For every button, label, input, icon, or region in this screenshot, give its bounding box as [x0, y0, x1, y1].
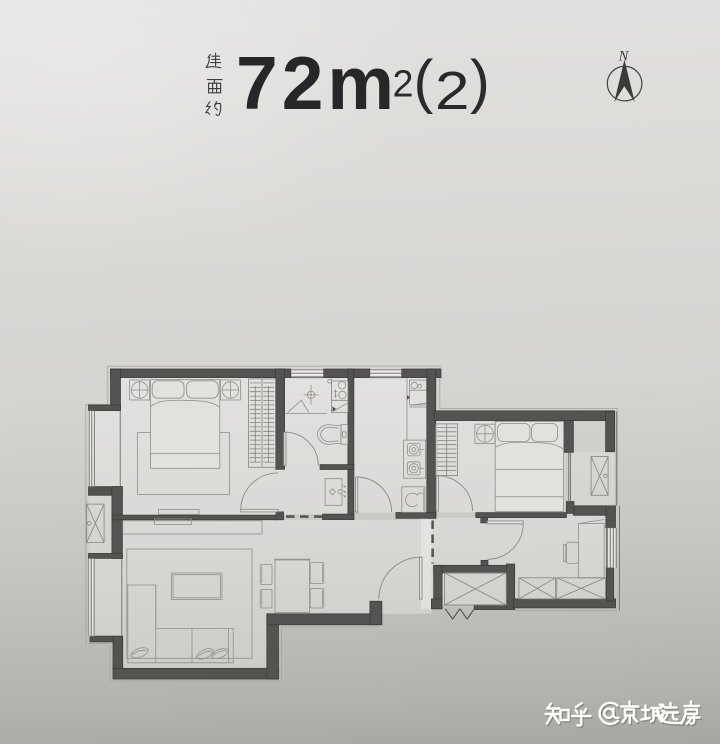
svg-text:): ) [470, 47, 490, 114]
svg-text:2: 2 [393, 63, 414, 105]
svg-text:2: 2 [435, 61, 470, 121]
svg-text:N: N [618, 49, 630, 65]
svg-text:(: ( [414, 47, 434, 114]
svg-text:72m: 72m [236, 41, 398, 125]
